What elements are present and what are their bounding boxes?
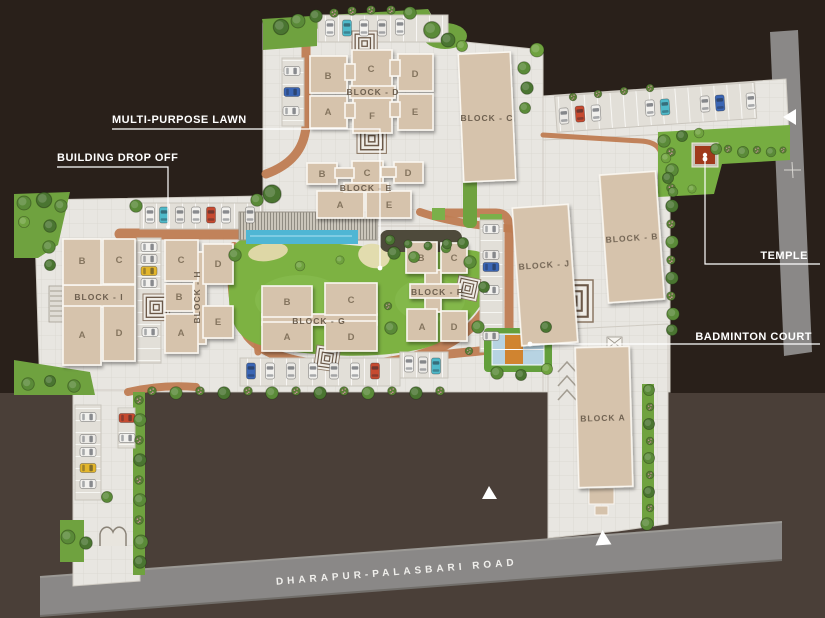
car-icon — [326, 20, 335, 36]
tree-icon — [263, 185, 281, 203]
green-pocket — [432, 208, 445, 220]
car-icon — [141, 243, 157, 252]
car-icon — [119, 414, 135, 423]
tree-icon — [362, 387, 375, 400]
building-block-a: BLOCK A — [575, 346, 633, 487]
flower-shrub-icon — [780, 147, 787, 154]
tree-icon — [134, 556, 147, 569]
car-icon — [283, 107, 299, 116]
tree-icon — [666, 324, 677, 335]
flower-shrub-icon — [569, 93, 577, 101]
tree-icon — [388, 247, 401, 260]
tree-icon — [710, 143, 721, 154]
block-f-label: BLOCK - F — [411, 287, 463, 297]
tree-icon — [408, 251, 419, 262]
car-icon — [591, 105, 601, 122]
flower-shrub-icon — [330, 9, 339, 18]
car-icon — [645, 100, 655, 117]
flower-shrub-icon — [465, 347, 473, 355]
flower-shrub-icon — [594, 90, 602, 98]
tree-icon — [515, 369, 526, 380]
tree-icon — [134, 535, 148, 549]
temple-label: TEMPLE — [760, 250, 808, 262]
tree-icon — [530, 43, 544, 57]
tree-icon — [643, 418, 654, 429]
tree-icon — [491, 367, 504, 380]
unit-label: B — [176, 292, 183, 303]
tree-icon — [55, 200, 68, 213]
tree-icon — [404, 7, 417, 20]
building-block-c: BLOCK - C — [458, 52, 516, 182]
green-top-corner — [263, 22, 317, 50]
tree-icon — [472, 321, 485, 334]
tree-icon — [766, 147, 776, 157]
unit-label: A — [337, 200, 344, 211]
unit-label: B — [284, 297, 291, 308]
flower-shrub-icon — [292, 387, 301, 396]
site-plan: B C D A F E BLOCK - D B C D A E BLOCK - … — [0, 0, 825, 618]
block-e-label: BLOCK - E — [340, 183, 392, 193]
car-icon — [396, 19, 405, 35]
unit-label: C — [116, 255, 123, 266]
car-icon — [360, 20, 369, 36]
tree-icon — [694, 128, 704, 138]
car-icon — [483, 251, 499, 260]
tree-icon — [424, 22, 441, 39]
block-c-label: BLOCK - C — [461, 113, 514, 123]
tree-icon — [336, 256, 344, 264]
tree-icon — [295, 261, 305, 271]
unit-label: E — [386, 200, 392, 211]
car-icon — [419, 357, 428, 373]
car-icon — [207, 207, 216, 223]
car-icon — [80, 480, 96, 489]
unit-label: E — [412, 107, 418, 118]
tree-icon — [442, 239, 452, 249]
tree-icon — [643, 486, 654, 497]
car-icon — [483, 263, 499, 272]
car-icon — [746, 93, 756, 110]
unit-label: C — [368, 64, 375, 75]
flower-shrub-icon — [348, 7, 357, 16]
building-block-i: B C A D BLOCK - I — [63, 239, 135, 365]
car-icon — [160, 207, 169, 223]
car-icon — [309, 363, 318, 379]
unit-label: B — [79, 256, 86, 267]
car-icon — [343, 20, 352, 36]
tree-icon — [410, 387, 423, 400]
block-g-label: BLOCK - G — [292, 316, 345, 326]
unit-label: D — [405, 168, 412, 179]
tree-icon — [464, 256, 477, 269]
outbuilding — [589, 488, 614, 504]
flower-shrub-icon — [135, 436, 144, 445]
unit-label: E — [215, 317, 221, 328]
car-icon — [176, 207, 185, 223]
flower-shrub-icon — [724, 145, 732, 153]
badminton-court-label: BADMINTON COURT — [695, 331, 812, 343]
tree-icon — [688, 185, 696, 193]
flower-shrub-icon — [135, 396, 144, 405]
tree-icon — [266, 387, 279, 400]
unit-label: A — [325, 107, 332, 118]
tree-icon — [17, 196, 31, 210]
tree-icon — [666, 236, 679, 249]
car-icon — [247, 363, 256, 379]
car-icon — [330, 363, 339, 379]
tree-icon — [134, 414, 147, 427]
flower-shrub-icon — [620, 87, 628, 95]
car-icon — [575, 106, 585, 123]
tree-icon — [478, 281, 489, 292]
car-icon — [284, 67, 300, 76]
flower-shrub-icon — [148, 387, 157, 396]
tree-icon — [130, 200, 143, 213]
car-icon — [700, 96, 710, 113]
tree-icon — [540, 321, 551, 332]
car-icon — [660, 99, 670, 116]
flower-shrub-icon — [646, 84, 654, 92]
flower-shrub-icon — [667, 220, 676, 229]
car-icon — [192, 207, 201, 223]
car-icon — [142, 328, 158, 337]
tree-icon — [456, 40, 467, 51]
tree-icon — [667, 308, 680, 321]
car-icon — [284, 88, 300, 97]
block-h-label: BLOCK - H — [192, 271, 202, 324]
tree-icon — [18, 216, 29, 227]
pergola — [49, 286, 63, 322]
flower-shrub-icon — [367, 6, 376, 15]
tree-icon — [314, 387, 327, 400]
tree-icon — [658, 135, 671, 148]
tree-icon — [291, 14, 305, 28]
building-block-d: B C D A F E BLOCK - D — [310, 50, 433, 133]
car-icon — [371, 363, 380, 379]
flower-shrub-icon — [388, 387, 397, 396]
flower-shrub-icon — [646, 471, 654, 479]
car-icon — [287, 363, 296, 379]
car-icon — [119, 434, 135, 443]
tree-icon — [676, 130, 687, 141]
flower-shrub-icon — [387, 6, 396, 15]
unit-label: D — [451, 322, 458, 333]
unit-label: B — [319, 169, 326, 180]
tree-icon — [43, 241, 56, 254]
unit-label: C — [451, 253, 458, 264]
unit-label: A — [178, 328, 185, 339]
car-icon — [351, 363, 360, 379]
tree-icon — [668, 187, 678, 197]
car-icon — [559, 108, 569, 125]
unit-label: D — [116, 328, 123, 339]
tree-icon — [518, 62, 531, 75]
block-d-label: BLOCK - D — [347, 87, 400, 97]
tree-icon — [134, 454, 147, 467]
tree-icon — [310, 10, 323, 23]
tree-icon — [404, 240, 412, 248]
unit-label: C — [364, 168, 371, 179]
building-drop-off-label: BUILDING DROP OFF — [57, 152, 178, 164]
tree-icon — [737, 146, 748, 157]
flower-shrub-icon — [196, 387, 205, 396]
tree-icon — [541, 363, 552, 374]
car-icon — [405, 356, 414, 372]
tree-icon — [44, 375, 55, 386]
flower-shrub-icon — [667, 292, 676, 301]
tree-icon — [68, 380, 81, 393]
flower-shrub-icon — [646, 403, 654, 411]
unit-label: D — [348, 332, 355, 343]
tree-icon — [666, 200, 679, 213]
unit-label: C — [348, 295, 355, 306]
car-icon — [378, 20, 387, 36]
car-icon — [266, 363, 275, 379]
car-icon — [141, 279, 157, 288]
tree-icon — [457, 237, 468, 248]
car-icon — [483, 332, 499, 341]
tree-icon — [134, 494, 147, 507]
tree-icon — [44, 220, 57, 233]
multi-purpose-lawn-label: MULTI-PURPOSE LAWN — [112, 114, 247, 126]
tree-icon — [521, 82, 534, 95]
car-icon — [80, 435, 96, 444]
tree-icon — [385, 235, 395, 245]
car-icon — [715, 95, 725, 112]
block-a-label: BLOCK A — [580, 412, 626, 423]
tree-icon — [666, 272, 679, 285]
site-plan-stage: B C D A F E BLOCK - D B C D A E BLOCK - … — [0, 0, 825, 618]
tree-icon — [424, 242, 432, 250]
tree-icon — [273, 19, 288, 34]
tree-icon — [61, 530, 75, 544]
tree-icon — [519, 102, 530, 113]
unit-label: F — [369, 111, 375, 122]
car-icon — [246, 207, 255, 223]
car-icon — [141, 267, 157, 276]
tree-icon — [36, 192, 51, 207]
flower-shrub-icon — [135, 476, 144, 485]
tree-icon — [643, 384, 654, 395]
flower-shrub-icon — [646, 504, 654, 512]
tree-icon — [218, 387, 231, 400]
flower-shrub-icon — [646, 437, 654, 445]
tree-icon — [22, 378, 35, 391]
tree-icon — [44, 259, 55, 270]
tree-icon — [101, 491, 112, 502]
flower-shrub-icon — [135, 516, 144, 525]
tree-icon — [641, 518, 654, 531]
tree-icon — [251, 194, 264, 207]
flower-shrub-icon — [244, 387, 253, 396]
car-icon — [222, 207, 231, 223]
tree-icon — [441, 33, 455, 47]
outbuilding — [595, 506, 608, 515]
unit-label: D — [215, 259, 222, 270]
block-i-label: BLOCK - I — [74, 292, 123, 302]
unit-label: A — [419, 322, 426, 333]
unit-label: A — [79, 330, 86, 341]
tree-icon — [661, 153, 671, 163]
flower-shrub-icon — [340, 387, 349, 396]
car-icon — [80, 464, 96, 473]
car-icon — [432, 358, 441, 374]
tree-icon — [643, 452, 654, 463]
tree-icon — [80, 537, 93, 550]
tree-icon — [662, 172, 673, 183]
car-icon — [80, 413, 96, 422]
flower-shrub-icon — [667, 256, 676, 265]
car-icon — [141, 255, 157, 264]
unit-label: C — [178, 255, 185, 266]
tree-icon — [170, 387, 183, 400]
tree-icon — [229, 249, 242, 262]
flower-shrub-icon — [384, 302, 392, 310]
flower-shrub-icon — [753, 146, 761, 154]
car-icon — [146, 207, 155, 223]
unit-label: D — [412, 69, 419, 80]
car-icon — [80, 448, 96, 457]
car-icon — [483, 225, 499, 234]
building-block-b: BLOCK - B — [600, 171, 665, 303]
tree-icon — [385, 322, 398, 335]
flower-shrub-icon — [436, 387, 445, 396]
unit-label: A — [284, 332, 291, 343]
unit-label: B — [325, 71, 332, 82]
